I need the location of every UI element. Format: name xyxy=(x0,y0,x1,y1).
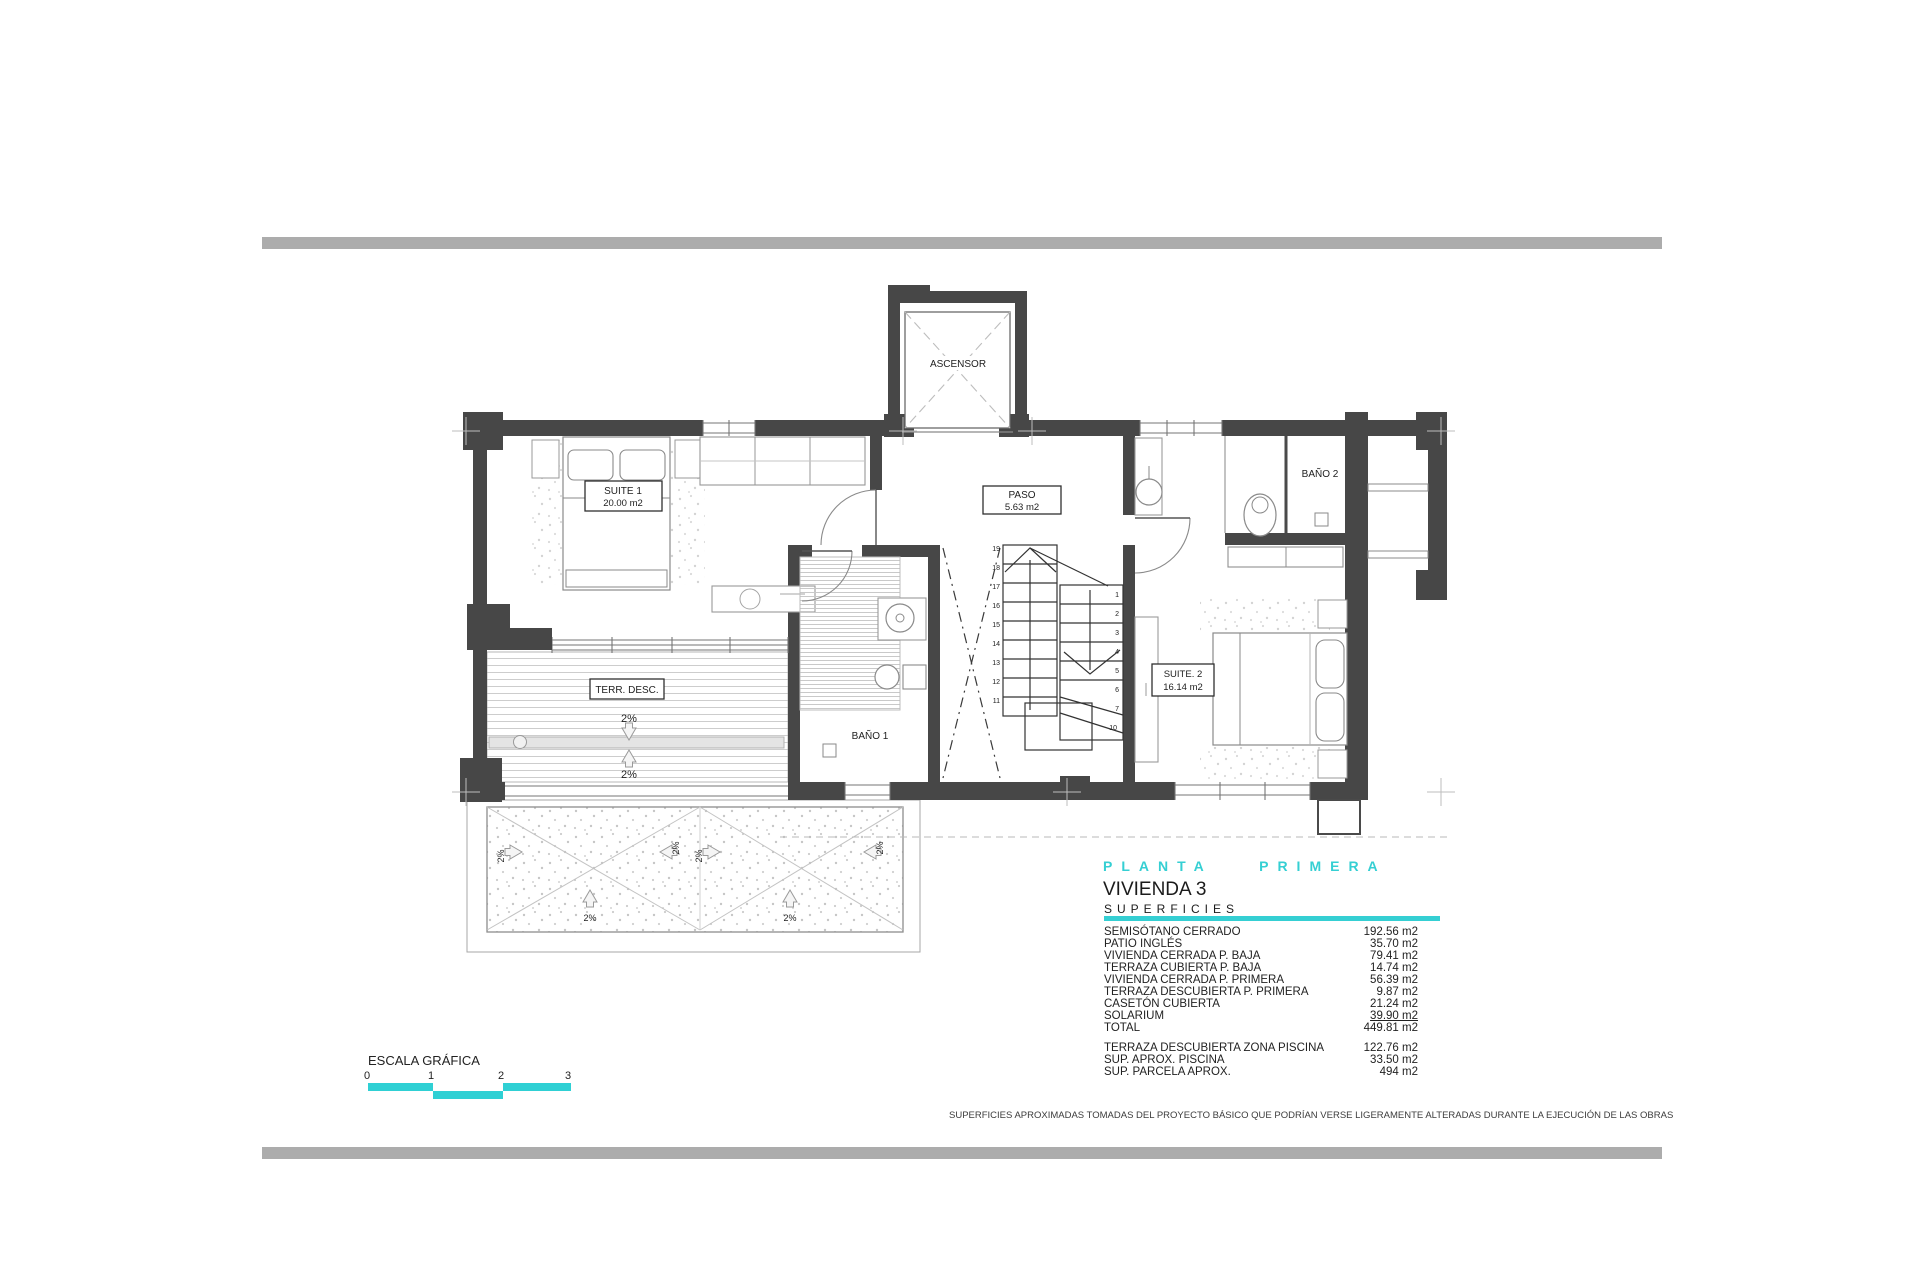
row-value: 122.76 m2 xyxy=(1364,1042,1418,1054)
table-row-total: TOTAL449.81 m2 xyxy=(1104,1022,1418,1034)
row-value: 494 m2 xyxy=(1380,1066,1418,1078)
pillow xyxy=(1316,640,1344,688)
scale-tick: 2 xyxy=(498,1070,518,1082)
row-label: TERRAZA CUBIERTA P. BAJA xyxy=(1104,962,1261,974)
svg-text:19: 19 xyxy=(992,546,1000,553)
svg-text:15: 15 xyxy=(992,622,1000,629)
roof-slope-label: 2% xyxy=(875,841,885,854)
svg-text:18: 18 xyxy=(992,565,1000,572)
svg-text:11: 11 xyxy=(993,698,1000,705)
svg-text:6: 6 xyxy=(1115,687,1119,694)
drain-channel xyxy=(489,737,784,748)
svg-text:17: 17 xyxy=(992,584,1000,591)
row-label: SOLARIUM xyxy=(1104,1010,1164,1022)
table-row: TERRAZA CUBIERTA P. BAJA14.74 m2 xyxy=(1104,962,1418,974)
table-row: SEMISÓTANO CERRADO192.56 m2 xyxy=(1104,926,1418,938)
paso-label: PASO xyxy=(1008,490,1035,501)
sink-icon xyxy=(886,604,914,632)
roof-slope-label: 2% xyxy=(583,913,596,923)
row-value: 33.50 m2 xyxy=(1370,1054,1418,1066)
svg-text:10: 10 xyxy=(1109,725,1117,732)
pillow xyxy=(620,450,665,480)
row-label: PATIO INGLÉS xyxy=(1104,938,1182,950)
table-row: TERRAZA DESCUBIERTA ZONA PISCINA122.76 m… xyxy=(1104,1042,1418,1054)
svg-text:1: 1 xyxy=(1115,592,1119,599)
nightstand xyxy=(1318,600,1347,628)
door-arc xyxy=(1135,518,1190,573)
svg-text:7: 7 xyxy=(1115,706,1119,713)
row-label: VIVIENDA CERRADA P. PRIMERA xyxy=(1104,974,1284,986)
table-row: VIVIENDA CERRADA P. BAJA79.41 m2 xyxy=(1104,950,1418,962)
row-value: 9.87 m2 xyxy=(1376,986,1418,998)
toilet-icon xyxy=(875,665,899,689)
terrace-slope-label: 2% xyxy=(621,769,637,781)
scale-tick: 0 xyxy=(364,1070,384,1082)
svg-text:12: 12 xyxy=(992,679,1000,686)
bed-bench xyxy=(566,570,667,587)
roof-slope-label: 2% xyxy=(694,849,704,862)
plan-title: PLANTA PRIMERA xyxy=(1103,858,1387,874)
unit-title: VIVIENDA 3 xyxy=(1103,879,1207,901)
stair-numbers: 19 18 17 16 15 14 13 12 11 1 2 3 4 5 6 7… xyxy=(992,546,1119,732)
svg-text:13: 13 xyxy=(992,660,1000,667)
floor-plan-drawing: 2% 2% 2% 2% 2% 2% TERR. DESC. 2% 2% xyxy=(0,0,1920,1280)
table-row: CASETÓN CUBIERTA21.24 m2 xyxy=(1104,998,1418,1010)
roof-slope-label: 2% xyxy=(671,841,681,854)
row-value: 449.81 m2 xyxy=(1364,1022,1418,1034)
row-label: VIVIENDA CERRADA P. BAJA xyxy=(1104,950,1260,962)
sink-icon xyxy=(1136,479,1162,505)
roof-slope-label: 2% xyxy=(783,913,796,923)
row-value: 79.41 m2 xyxy=(1370,950,1418,962)
svg-text:4: 4 xyxy=(1115,649,1119,656)
table-row: PATIO INGLÉS35.70 m2 xyxy=(1104,938,1418,950)
floor-plan-sheet: 2% 2% 2% 2% 2% 2% TERR. DESC. 2% 2% xyxy=(0,0,1920,1280)
scale-tick: 3 xyxy=(565,1070,585,1082)
surfaces-table: SEMISÓTANO CERRADO192.56 m2 PATIO INGLÉS… xyxy=(1104,926,1418,1078)
table-row: VIVIENDA CERRADA P. PRIMERA56.39 m2 xyxy=(1104,974,1418,986)
roof-slope-label: 2% xyxy=(496,849,506,862)
row-value: 14.74 m2 xyxy=(1370,962,1418,974)
row-value: 192.56 m2 xyxy=(1364,926,1418,938)
svg-text:5: 5 xyxy=(1115,668,1119,675)
lower-roof: 2% 2% 2% 2% 2% 2% xyxy=(467,800,920,952)
row-value: 35.70 m2 xyxy=(1370,938,1418,950)
suite2-area: 16.14 m2 xyxy=(1163,682,1203,693)
drain-outlet-icon xyxy=(514,736,527,749)
row-label: TERRAZA DESCUBIERTA ZONA PISCINA xyxy=(1104,1042,1324,1054)
row-value: 21.24 m2 xyxy=(1370,998,1418,1010)
accent-rule xyxy=(1104,916,1440,921)
floor-drain-icon xyxy=(1315,513,1328,526)
row-label: SUP. PARCELA APROX. xyxy=(1104,1066,1231,1078)
svg-text:2: 2 xyxy=(1115,611,1119,618)
exterior-pillar xyxy=(1318,800,1360,834)
suite1-label: SUITE 1 xyxy=(604,486,642,497)
scale-bar-label: ESCALA GRÁFICA xyxy=(368,1053,480,1068)
elevator: ASCENSOR xyxy=(902,312,1013,432)
svg-text:14: 14 xyxy=(992,641,1000,648)
paso: PASO 5.63 m2 xyxy=(983,486,1061,514)
scale-tick: 1 xyxy=(428,1070,448,1082)
suite2: SUITE. 2 16.14 m2 xyxy=(1135,598,1347,780)
svg-text:3: 3 xyxy=(1115,630,1119,637)
table-row: TERRAZA DESCUBIERTA P. PRIMERA9.87 m2 xyxy=(1104,986,1418,998)
floor-drain-icon xyxy=(823,744,836,757)
table-row: SUP. PARCELA APROX.494 m2 xyxy=(1104,1066,1418,1078)
door-arc xyxy=(821,490,876,545)
row-label: SUP. APROX. PISCINA xyxy=(1104,1054,1225,1066)
scale-bar-segment xyxy=(433,1091,503,1099)
toilet-icon xyxy=(1244,494,1276,536)
svg-text:16: 16 xyxy=(992,603,1000,610)
toilet-tank xyxy=(903,665,926,689)
suite1-area: 20.00 m2 xyxy=(603,498,643,509)
scale-bar-segment xyxy=(368,1083,433,1091)
suite2-label: SUITE. 2 xyxy=(1164,669,1203,680)
nightstand xyxy=(675,440,702,478)
elevator-label: ASCENSOR xyxy=(930,359,986,370)
pillow xyxy=(568,450,613,480)
bano1-label: BAÑO 1 xyxy=(852,729,889,742)
scale-bar-segment xyxy=(503,1083,571,1091)
staircase xyxy=(1003,545,1123,750)
bano2: BAÑO 2 xyxy=(1135,436,1343,573)
row-label: TERRAZA DESCUBIERTA P. PRIMERA xyxy=(1104,986,1309,998)
nightstand xyxy=(532,440,559,478)
surfaces-section-title: SUPERFICIES xyxy=(1104,902,1239,916)
bano1: BAÑO 1 xyxy=(800,551,926,757)
row-label: SEMISÓTANO CERRADO xyxy=(1104,926,1241,938)
terrace: TERR. DESC. 2% 2% xyxy=(487,652,788,782)
row-label: CASETÓN CUBIERTA xyxy=(1104,998,1220,1010)
nightstand xyxy=(1318,750,1347,778)
table-row: SOLARIUM39.90 m2 xyxy=(1104,1010,1418,1022)
terrace-label: TERR. DESC. xyxy=(595,685,658,696)
footer-note: SUPERFICIES APROXIMADAS TOMADAS DEL PROY… xyxy=(949,1110,1561,1121)
table-row: SUP. APROX. PISCINA33.50 m2 xyxy=(1104,1054,1418,1066)
pillow xyxy=(1316,693,1344,741)
paso-area: 5.63 m2 xyxy=(1005,502,1039,513)
bano2-label: BAÑO 2 xyxy=(1302,467,1339,480)
row-value: 56.39 m2 xyxy=(1370,974,1418,986)
row-value: 39.90 m2 xyxy=(1370,1010,1418,1022)
row-label: TOTAL xyxy=(1104,1022,1140,1034)
